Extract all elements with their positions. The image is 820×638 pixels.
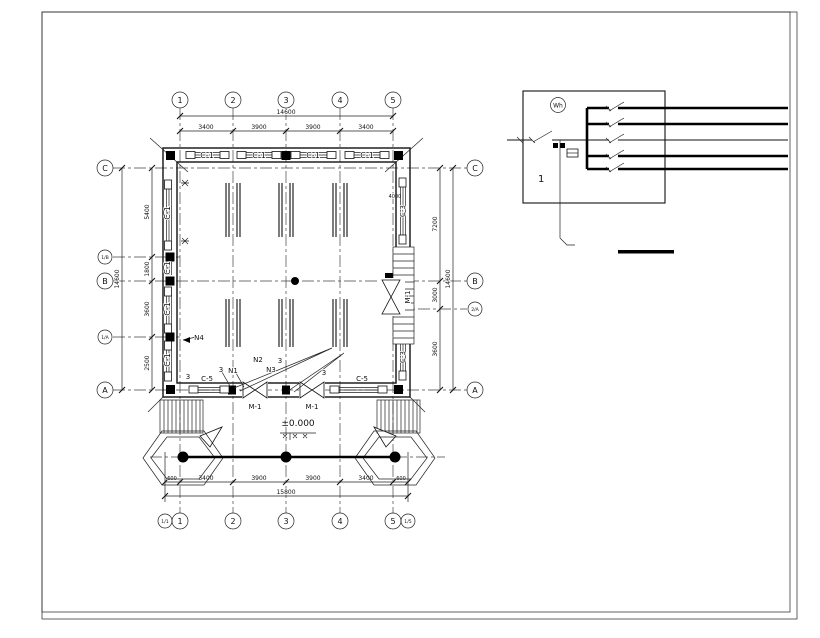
scale-bar <box>618 250 674 254</box>
axis-left-1b: 1/B <box>101 255 109 261</box>
elevation-marker <box>280 433 316 440</box>
cad-drawing-sheet: 3400 3900 3900 3400 14600 600 3400 3900 … <box>0 0 820 638</box>
label-n4: N4 <box>194 334 204 342</box>
wall-star-marks <box>181 180 189 244</box>
label-m1-right: M-1 <box>404 290 412 303</box>
dim-top-seg-1: 3400 <box>198 124 213 131</box>
axis-bottom-1-1: 1/1 <box>161 519 168 525</box>
label-c1-left-4: C-1 <box>163 353 172 367</box>
dim-right-total: 14600 <box>445 269 452 288</box>
dim-left-total: 14600 <box>114 269 121 288</box>
label-c1-top-3: C-1 <box>306 151 320 160</box>
label-mark3-c: 3 <box>278 357 282 365</box>
label-n1: N1 <box>228 367 238 375</box>
dim-right-seg-1: 7200 <box>432 216 439 231</box>
dim-right-seg-3: 3600 <box>432 341 439 356</box>
incoming-feeder <box>507 131 587 245</box>
label-c3-upper: C-3 <box>399 205 407 217</box>
axis-bottom-4: 4 <box>337 517 342 526</box>
axis-right-2a: 2/A <box>471 307 479 313</box>
panel-number-label: 1 <box>538 174 544 185</box>
dim-left-seg-3: 3600 <box>144 301 151 316</box>
label-n3: N3 <box>266 366 276 374</box>
right-door-m1 <box>379 278 405 316</box>
building-plan: C-1 C-1 C-1 C-1 C-1 C-1 C-1 C-1 C-3 C-3 … <box>143 138 435 485</box>
entrance-porch <box>143 400 435 485</box>
wall-columns <box>166 151 404 395</box>
label-m1-door1: M-1 <box>248 403 261 411</box>
dim-top-total: 14600 <box>276 109 295 116</box>
axis-right-b: B <box>472 277 478 286</box>
dim-top-seg-2: 3900 <box>251 124 266 131</box>
axis-right-a: A <box>472 386 478 395</box>
interior-columns <box>226 183 347 347</box>
axis-top-1: 1 <box>177 96 182 105</box>
dim-bot-seg-2: 3400 <box>198 475 213 482</box>
axis-bottom-3: 3 <box>283 517 288 526</box>
label-c1-left-1: C-1 <box>163 206 172 220</box>
axis-bottom-1-5: 1/5 <box>404 519 411 525</box>
label-m1-door2: M-1 <box>305 403 318 411</box>
axis-bottom-5: 5 <box>390 517 395 526</box>
axis-left-c: C <box>102 164 108 173</box>
n4-arrowhead <box>183 337 190 343</box>
label-c3-lower: C-3 <box>399 351 407 363</box>
label-c1-left-3: C-1 <box>163 302 172 316</box>
label-mark3-a: 3 <box>186 373 190 381</box>
dim-right-seg-2: 3000 <box>432 287 439 302</box>
axis-bottom-1: 1 <box>177 517 182 526</box>
axis-bottom-2: 2 <box>230 517 235 526</box>
meter-label: Wh <box>553 103 563 110</box>
electrical-schematic: Wh 1 <box>507 91 788 254</box>
dim-left-seg-1: 5400 <box>144 204 151 219</box>
dim-bot-seg-3: 3900 <box>251 475 266 482</box>
dim-stair-note: 4000 <box>389 194 402 200</box>
sheet-border <box>42 12 797 619</box>
label-elevation: ±0.000 <box>281 419 315 429</box>
label-c5-right: C-5 <box>356 375 368 383</box>
label-c5-left: C-5 <box>201 375 213 383</box>
dim-top-seg-4: 3400 <box>358 124 373 131</box>
axis-left-b: B <box>102 277 108 286</box>
axis-right-c: C <box>472 164 478 173</box>
dim-left-seg-2: 1800 <box>144 261 151 276</box>
label-c1-top-1: C-1 <box>200 151 214 160</box>
dim-top-seg-3: 3900 <box>305 124 320 131</box>
axis-left-1a: 1/A <box>101 335 109 341</box>
axis-left-a: A <box>102 386 108 395</box>
dim-left-seg-4: 2500 <box>144 355 151 370</box>
branch-circuits <box>587 102 788 172</box>
dim-bot-total: 15800 <box>276 489 295 496</box>
label-mark3-d: 3 <box>322 369 326 377</box>
dim-bot-seg-4: 3900 <box>305 475 320 482</box>
label-c1-top-4: C-1 <box>360 151 374 160</box>
label-c1-top-2: C-1 <box>252 151 266 160</box>
label-mark3-b: 3 <box>219 366 223 374</box>
label-n2: N2 <box>253 356 263 364</box>
axis-top-3: 3 <box>283 96 288 105</box>
center-column-dot <box>291 277 299 285</box>
axis-top-5: 5 <box>390 96 395 105</box>
axis-top-2: 2 <box>230 96 235 105</box>
label-c1-left-2: C-1 <box>163 261 172 275</box>
axis-top-4: 4 <box>337 96 342 105</box>
